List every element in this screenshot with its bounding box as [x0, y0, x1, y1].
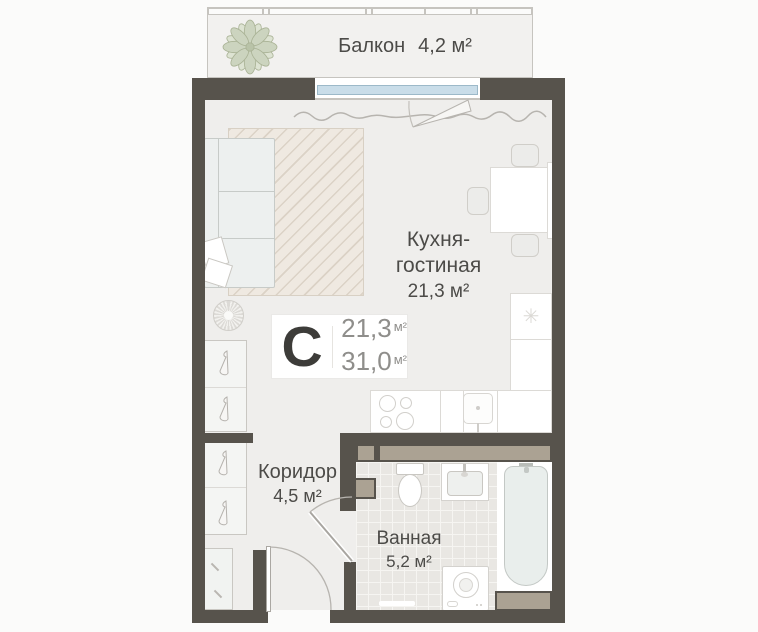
wardrobe-living [204, 340, 247, 432]
plant-icon [222, 19, 278, 75]
kitchen-faucet-stem [477, 423, 479, 433]
wall-segment [253, 550, 267, 623]
sofa-cushion-divider [218, 191, 274, 192]
cabinet-mark [214, 590, 222, 598]
bathtub-faucet [519, 463, 533, 466]
towel-rail [379, 601, 415, 606]
washer-drum-inner [459, 578, 473, 592]
sink-faucet [461, 472, 468, 477]
sofa [204, 138, 275, 288]
total-area-value: 31,0 [341, 346, 392, 376]
stove-burner [396, 412, 414, 430]
kitchen-living-area: 21,3 м² [357, 280, 520, 304]
corridor-label: Коридор 4,5 м² [240, 460, 355, 508]
unit-type-label: С [272, 317, 332, 377]
stove-burner [380, 416, 392, 428]
balcony-area: 4,2 м² [418, 34, 472, 59]
vent-shaft-band [356, 444, 552, 462]
stove-burner [400, 397, 412, 409]
window-glass [317, 85, 478, 95]
kitchen-faucet [476, 406, 480, 410]
pouf-center [224, 311, 233, 320]
pouf [213, 300, 244, 331]
corridor-name: Коридор [240, 460, 355, 485]
unit-info-card: С 21,3м² 31,0м² [272, 315, 407, 378]
washer-detail [480, 604, 482, 606]
wall-segment [192, 78, 205, 623]
card-divider [332, 326, 333, 368]
sofa-cushion-divider [218, 238, 274, 239]
shaft-separator [374, 444, 380, 462]
counter-divider [497, 391, 498, 432]
hanger-icon [214, 395, 234, 425]
bathroom-sink [441, 463, 489, 501]
toilet-bowl [398, 474, 422, 507]
hanger-icon [214, 349, 234, 379]
living-area-value: 21,3 [341, 313, 392, 343]
floor-plan: Балкон 4,2 м² ✳ [0, 0, 758, 632]
living-area-row: 21,3м² [341, 314, 407, 347]
balcony-room: Балкон 4,2 м² [207, 14, 533, 78]
vent-shaft-box [495, 591, 552, 611]
hanger-icon [213, 449, 233, 479]
washer-detail [476, 604, 478, 606]
wardrobe-shelf-divider [205, 387, 246, 388]
shoe-cabinet [203, 548, 233, 610]
stove-burner [379, 395, 396, 412]
balcony-name: Балкон [338, 34, 405, 59]
entry-door-leaf [266, 546, 271, 612]
kitchen-living-name-line1: Кухня- [357, 227, 520, 253]
kitchen-living-name-line2: гостиная [357, 253, 520, 279]
counter-divider [440, 391, 441, 432]
total-area-row: 31,0м² [341, 347, 407, 380]
balcony-label: Балкон 4,2 м² [278, 15, 532, 77]
window-sill-line [315, 98, 480, 100]
corridor-area: 4,5 м² [240, 485, 355, 508]
entry-threshold [268, 610, 330, 623]
area-unit: м² [394, 352, 407, 367]
chair [467, 187, 489, 215]
area-unit: м² [394, 319, 407, 334]
bathroom-area: 5,2 м² [348, 551, 470, 572]
washing-machine [442, 566, 489, 611]
wall-segment [192, 78, 315, 100]
dining-table [490, 167, 548, 233]
wall-segment [552, 78, 565, 623]
hanger-icon [213, 499, 233, 529]
bathroom-label: Ванная 5,2 м² [348, 527, 470, 572]
wall-segment [340, 433, 565, 446]
wall-segment [330, 610, 565, 623]
chair [511, 144, 539, 167]
cabinet-mark [211, 563, 219, 571]
washer-detail [447, 601, 458, 607]
unit-areas: 21,3м² 31,0м² [341, 314, 407, 380]
bathroom-name: Ванная [348, 527, 470, 551]
kitchen-living-label: Кухня- гостиная 21,3 м² [357, 227, 520, 303]
bathtub-faucet [524, 467, 529, 473]
wall-segment [192, 433, 253, 443]
bathtub [504, 466, 548, 586]
counter-divider [511, 339, 551, 340]
